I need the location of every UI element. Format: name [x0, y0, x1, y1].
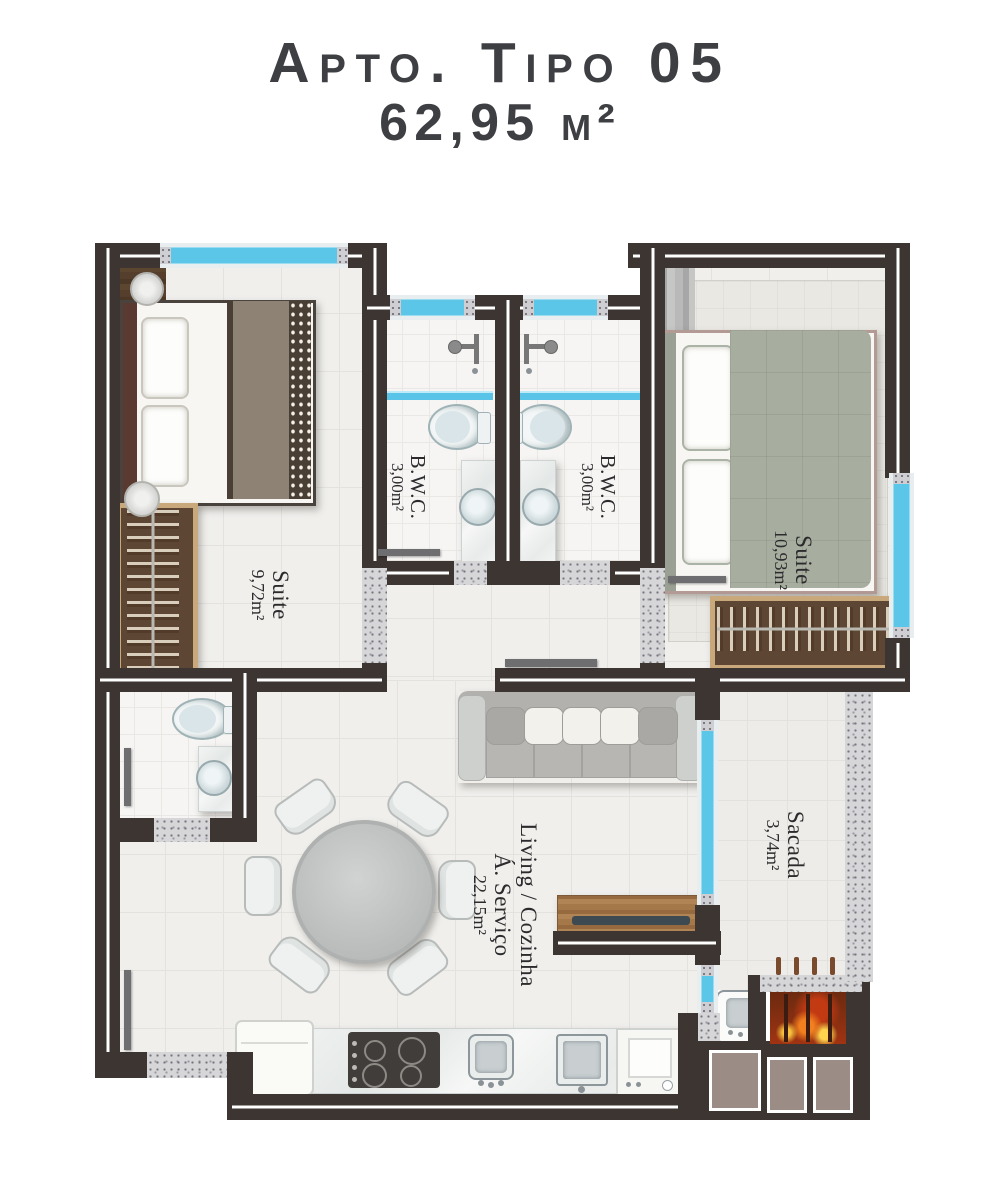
toilet-bwc-2: [514, 404, 572, 450]
wall-segment: [553, 931, 721, 955]
toilet-seat: [530, 411, 565, 443]
room-label-suite-1: Suite 9,72m²: [225, 520, 315, 670]
shower-arm: [474, 334, 479, 364]
room-area: 10,93m²: [770, 530, 790, 590]
door-leaf: [124, 970, 131, 1050]
masonry-block: [770, 1060, 804, 1110]
door-threshold: [362, 568, 387, 663]
room-label-suite-2: Suite 10,93m²: [750, 500, 836, 620]
door-leaf: [124, 748, 131, 806]
wall-segment: [628, 243, 910, 268]
skewer: [828, 994, 832, 1042]
door-threshold: [454, 561, 487, 585]
window: [160, 243, 348, 268]
pillow: [682, 345, 734, 451]
control-knob: [636, 1082, 641, 1087]
sliding-door-glass: [697, 965, 718, 1013]
sofa: [458, 691, 703, 783]
door-threshold: [640, 568, 665, 663]
room-area: 3,74m²: [762, 820, 782, 871]
control-dial: [662, 1080, 673, 1091]
sofa-pillow: [524, 707, 564, 745]
pillow: [682, 459, 734, 565]
faucet: [738, 1032, 743, 1037]
table-centerpiece: [337, 865, 383, 911]
round-sink-bwc-2: [522, 488, 560, 526]
masonry-block: [712, 1053, 758, 1108]
room-name: Suite: [790, 535, 816, 585]
round-sink-wc: [196, 760, 232, 796]
wall-segment: [210, 818, 257, 842]
toilet-seat: [435, 411, 470, 443]
wall-segment: [232, 668, 257, 842]
wall-segment: [678, 1013, 700, 1120]
shower-head-icon: [544, 340, 558, 354]
knob: [352, 1077, 357, 1082]
cooktop: [348, 1032, 440, 1088]
room-label-sacada: Sacada 3,74m²: [745, 777, 825, 913]
wall-segment: [95, 1052, 147, 1078]
faucet: [478, 1080, 484, 1086]
sliding-door-glass: [697, 720, 718, 905]
washer-door: [628, 1038, 672, 1078]
sofa-pillow: [486, 707, 526, 745]
window: [889, 473, 914, 638]
floor-plan: Apto. Tipo 05 62,95 m²: [0, 0, 1000, 1181]
burner: [364, 1040, 386, 1062]
room-name: Á. Serviço: [489, 853, 515, 956]
apartment-type-title: Apto. Tipo 05: [0, 34, 1000, 94]
burner: [362, 1063, 387, 1088]
tv-rack: [557, 895, 707, 935]
entry-door-threshold: [147, 1052, 227, 1078]
skewer-handle: [794, 957, 799, 975]
bed-blanket: [227, 301, 295, 499]
ceiling-light-icon: [130, 272, 164, 306]
knob: [352, 1041, 357, 1046]
room-area: 3,00m²: [577, 463, 596, 511]
room-name: B.W.C.: [406, 455, 430, 520]
room-name: Suite: [267, 570, 293, 620]
room-area: 9,72m²: [247, 570, 267, 621]
page-title: Apto. Tipo 05 62,95 m²: [0, 34, 1000, 154]
door-leaf: [378, 549, 440, 556]
shower-glass-panel: [518, 391, 640, 400]
faucet: [488, 1082, 494, 1088]
window: [523, 295, 608, 320]
skewer-handle: [776, 957, 781, 975]
shower-head-icon: [448, 340, 462, 354]
skewer: [806, 994, 810, 1042]
faucet: [728, 1030, 733, 1035]
kitchen-sink: [468, 1034, 514, 1080]
toilet-tank: [477, 412, 491, 443]
room-name: B.W.C.: [596, 455, 620, 520]
shower-glass-panel: [380, 391, 493, 400]
room-name: Living / Cozinha: [515, 823, 541, 987]
skewer-handle: [812, 957, 817, 975]
toilet-wc: [172, 698, 232, 740]
laundry-tank: [556, 1034, 608, 1086]
room-label-living: Living / Cozinha Á. Serviço 22,15m²: [455, 805, 555, 1005]
bed-suite-1: [120, 300, 316, 506]
bed-runner: [289, 301, 311, 499]
faucet: [578, 1086, 585, 1093]
wall-segment: [95, 243, 120, 1077]
knob: [352, 1053, 357, 1058]
sofa-arm: [458, 695, 486, 781]
knob: [352, 1065, 357, 1070]
wall-segment: [885, 243, 910, 478]
door-leaf: [668, 576, 726, 583]
room-label-bwc-1: B.W.C. 3,00m²: [378, 427, 438, 547]
skewer: [784, 994, 788, 1042]
tank-basin: [563, 1041, 601, 1079]
barbecue-grill: [770, 992, 846, 1044]
room-area: 22,15m²: [469, 875, 489, 935]
faucet: [498, 1080, 504, 1086]
valve: [526, 368, 532, 374]
window: [390, 295, 475, 320]
tv: [572, 916, 690, 925]
washing-machine: [616, 1028, 684, 1096]
sofa-pillow: [562, 707, 602, 745]
shower-icon: [448, 332, 486, 372]
valve: [472, 368, 478, 374]
control-knob: [626, 1082, 631, 1087]
wall-segment: [495, 295, 520, 585]
wall-segment: [640, 243, 665, 568]
chair-seat: [244, 856, 282, 916]
pillow: [141, 317, 189, 399]
wall-segment: [487, 561, 560, 585]
apartment-area-title: 62,95 m²: [0, 94, 1000, 154]
burner: [400, 1065, 422, 1087]
hangers: [127, 510, 179, 671]
door-threshold: [154, 818, 210, 842]
pillow: [141, 405, 189, 487]
round-sink-bwc-1: [459, 488, 497, 526]
shower-arm: [524, 334, 529, 364]
door-leaf: [505, 659, 597, 667]
burner: [398, 1037, 426, 1065]
wall-segment: [695, 668, 720, 720]
toilet-seat: [179, 705, 216, 733]
room-area: 3,00m²: [387, 463, 406, 511]
wall-segment: [120, 818, 154, 842]
sofa-pillow: [638, 707, 678, 745]
sofa-pillow: [600, 707, 640, 745]
wall-segment: [227, 1094, 719, 1120]
door-threshold: [560, 561, 610, 585]
room-name: Sacada: [782, 811, 808, 879]
shower-icon: [516, 332, 554, 372]
room-label-bwc-2: B.W.C. 3,00m²: [568, 427, 628, 547]
wardrobe-suite-1: [116, 503, 198, 678]
ceiling-light-icon: [124, 481, 160, 517]
sink-basin: [475, 1041, 507, 1073]
bed-headboard: [123, 303, 137, 503]
masonry-block: [816, 1060, 850, 1110]
masonry-post: [698, 1013, 720, 1041]
skewer-handle: [830, 957, 835, 975]
balcony-railing: [845, 692, 873, 982]
